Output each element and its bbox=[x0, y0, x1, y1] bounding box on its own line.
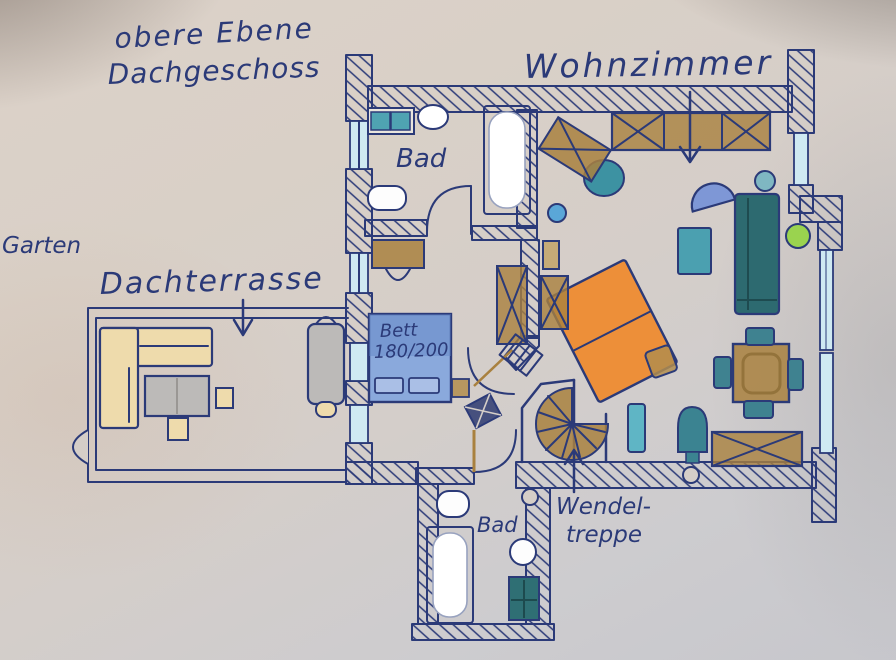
hall-door bbox=[474, 430, 516, 472]
doormat bbox=[465, 394, 501, 428]
bathtub-upper bbox=[484, 106, 530, 214]
chest-bench bbox=[712, 432, 802, 466]
label-stairs-line1: Wendel- bbox=[556, 494, 651, 520]
wall-bath-living-stub bbox=[472, 226, 537, 240]
sofa-teal bbox=[735, 194, 779, 314]
label-terrace: Dachterrasse bbox=[99, 261, 324, 302]
floor-plan-photo: obere Ebene Dachgeschoss Wohnzimmer Bad … bbox=[0, 0, 896, 660]
wall-east-pillar bbox=[788, 50, 814, 133]
side-table-teal bbox=[755, 171, 775, 191]
toilet-upper bbox=[368, 186, 406, 210]
bedroom-door bbox=[468, 348, 514, 394]
shelf-small bbox=[543, 241, 559, 269]
dining-chair bbox=[714, 357, 731, 388]
stool-blue bbox=[548, 204, 566, 222]
office-chair bbox=[678, 407, 707, 463]
wall-bath-divider bbox=[365, 220, 427, 236]
armchair-blue bbox=[687, 178, 735, 211]
toilet-lower bbox=[437, 491, 469, 517]
wall-south-bedroom bbox=[346, 462, 418, 484]
label-living-room: Wohnzimmer bbox=[523, 43, 773, 86]
rug-teal bbox=[678, 228, 711, 274]
label-bath-upper: Bad bbox=[396, 144, 447, 174]
terrace-furniture bbox=[100, 317, 344, 440]
window-east bbox=[794, 133, 808, 185]
wall-post bbox=[683, 467, 699, 483]
plan-title-line2: Dachgeschoss bbox=[107, 51, 321, 91]
dining-table bbox=[733, 344, 789, 402]
nightstand bbox=[452, 379, 469, 397]
terrace-table bbox=[145, 376, 209, 416]
label-stairs-line2: treppe bbox=[566, 522, 642, 548]
shower bbox=[509, 577, 539, 620]
window-west bbox=[350, 405, 368, 443]
bath-upper-fixtures bbox=[368, 105, 530, 234]
shelf-teal bbox=[628, 404, 645, 452]
wall-west-pillar bbox=[346, 169, 372, 253]
pillow bbox=[409, 378, 439, 393]
sun-lounger bbox=[308, 317, 344, 417]
label-bed-line2: 180/200 bbox=[373, 339, 448, 363]
round-sink bbox=[418, 105, 448, 129]
dining-chair bbox=[744, 401, 773, 418]
plant-green bbox=[786, 224, 810, 248]
bedroom-wardrobe bbox=[497, 266, 527, 344]
plan-title-line1: obere Ebene bbox=[114, 12, 315, 55]
dining-chair bbox=[788, 359, 803, 390]
wall-east-elbow bbox=[800, 196, 842, 222]
label-bath-lower: Bad bbox=[477, 513, 518, 537]
floor-plan-drawing: obere Ebene Dachgeschoss Wohnzimmer Bad … bbox=[0, 0, 896, 660]
wall-east-elbow bbox=[818, 222, 842, 250]
bedroom-desk bbox=[372, 240, 424, 280]
bath-door bbox=[427, 186, 471, 234]
bath-lower-fixtures bbox=[427, 491, 539, 623]
window-west bbox=[350, 343, 368, 381]
window-east bbox=[820, 353, 833, 453]
living-furniture bbox=[539, 113, 810, 466]
terrace-gate bbox=[73, 430, 88, 464]
wall-post bbox=[522, 489, 538, 505]
sink-lower bbox=[510, 539, 536, 565]
wall-east-pillar bbox=[812, 448, 836, 522]
double-sink bbox=[368, 108, 414, 134]
terrace-stool bbox=[168, 418, 188, 440]
living-wardrobe bbox=[541, 276, 568, 329]
dining-chair bbox=[746, 328, 774, 345]
wall-south-stub bbox=[416, 468, 474, 484]
terrace-stool bbox=[216, 388, 233, 408]
label-garden: Garten bbox=[2, 233, 81, 259]
label-bed-line1: Bett bbox=[379, 320, 418, 342]
pillow bbox=[375, 378, 403, 393]
wall-bath-lower-south bbox=[412, 624, 554, 640]
